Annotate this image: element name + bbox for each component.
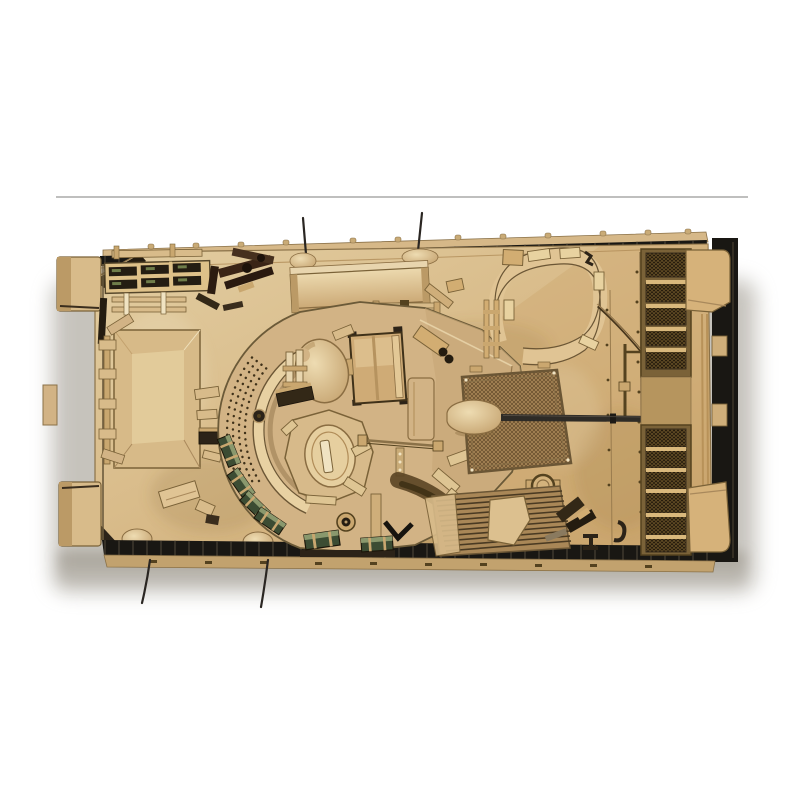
louvers-bottom [641, 425, 691, 555]
vehicle-model-illustration [0, 0, 800, 800]
left-fender-block-bottom [59, 482, 101, 546]
sight-box [344, 326, 408, 408]
squad-hatch [99, 314, 200, 468]
product-photo [0, 0, 800, 800]
left-fender-block-top [57, 257, 101, 311]
pulley-wheel [337, 513, 355, 531]
left-edge-tab [43, 385, 57, 425]
louver-gap-deck [641, 377, 691, 425]
louvers-top [641, 249, 691, 377]
mount-pillar [408, 378, 434, 440]
small-deck-box [503, 249, 524, 265]
vent-ribs [425, 486, 571, 556]
gun-mantlet [447, 400, 502, 434]
